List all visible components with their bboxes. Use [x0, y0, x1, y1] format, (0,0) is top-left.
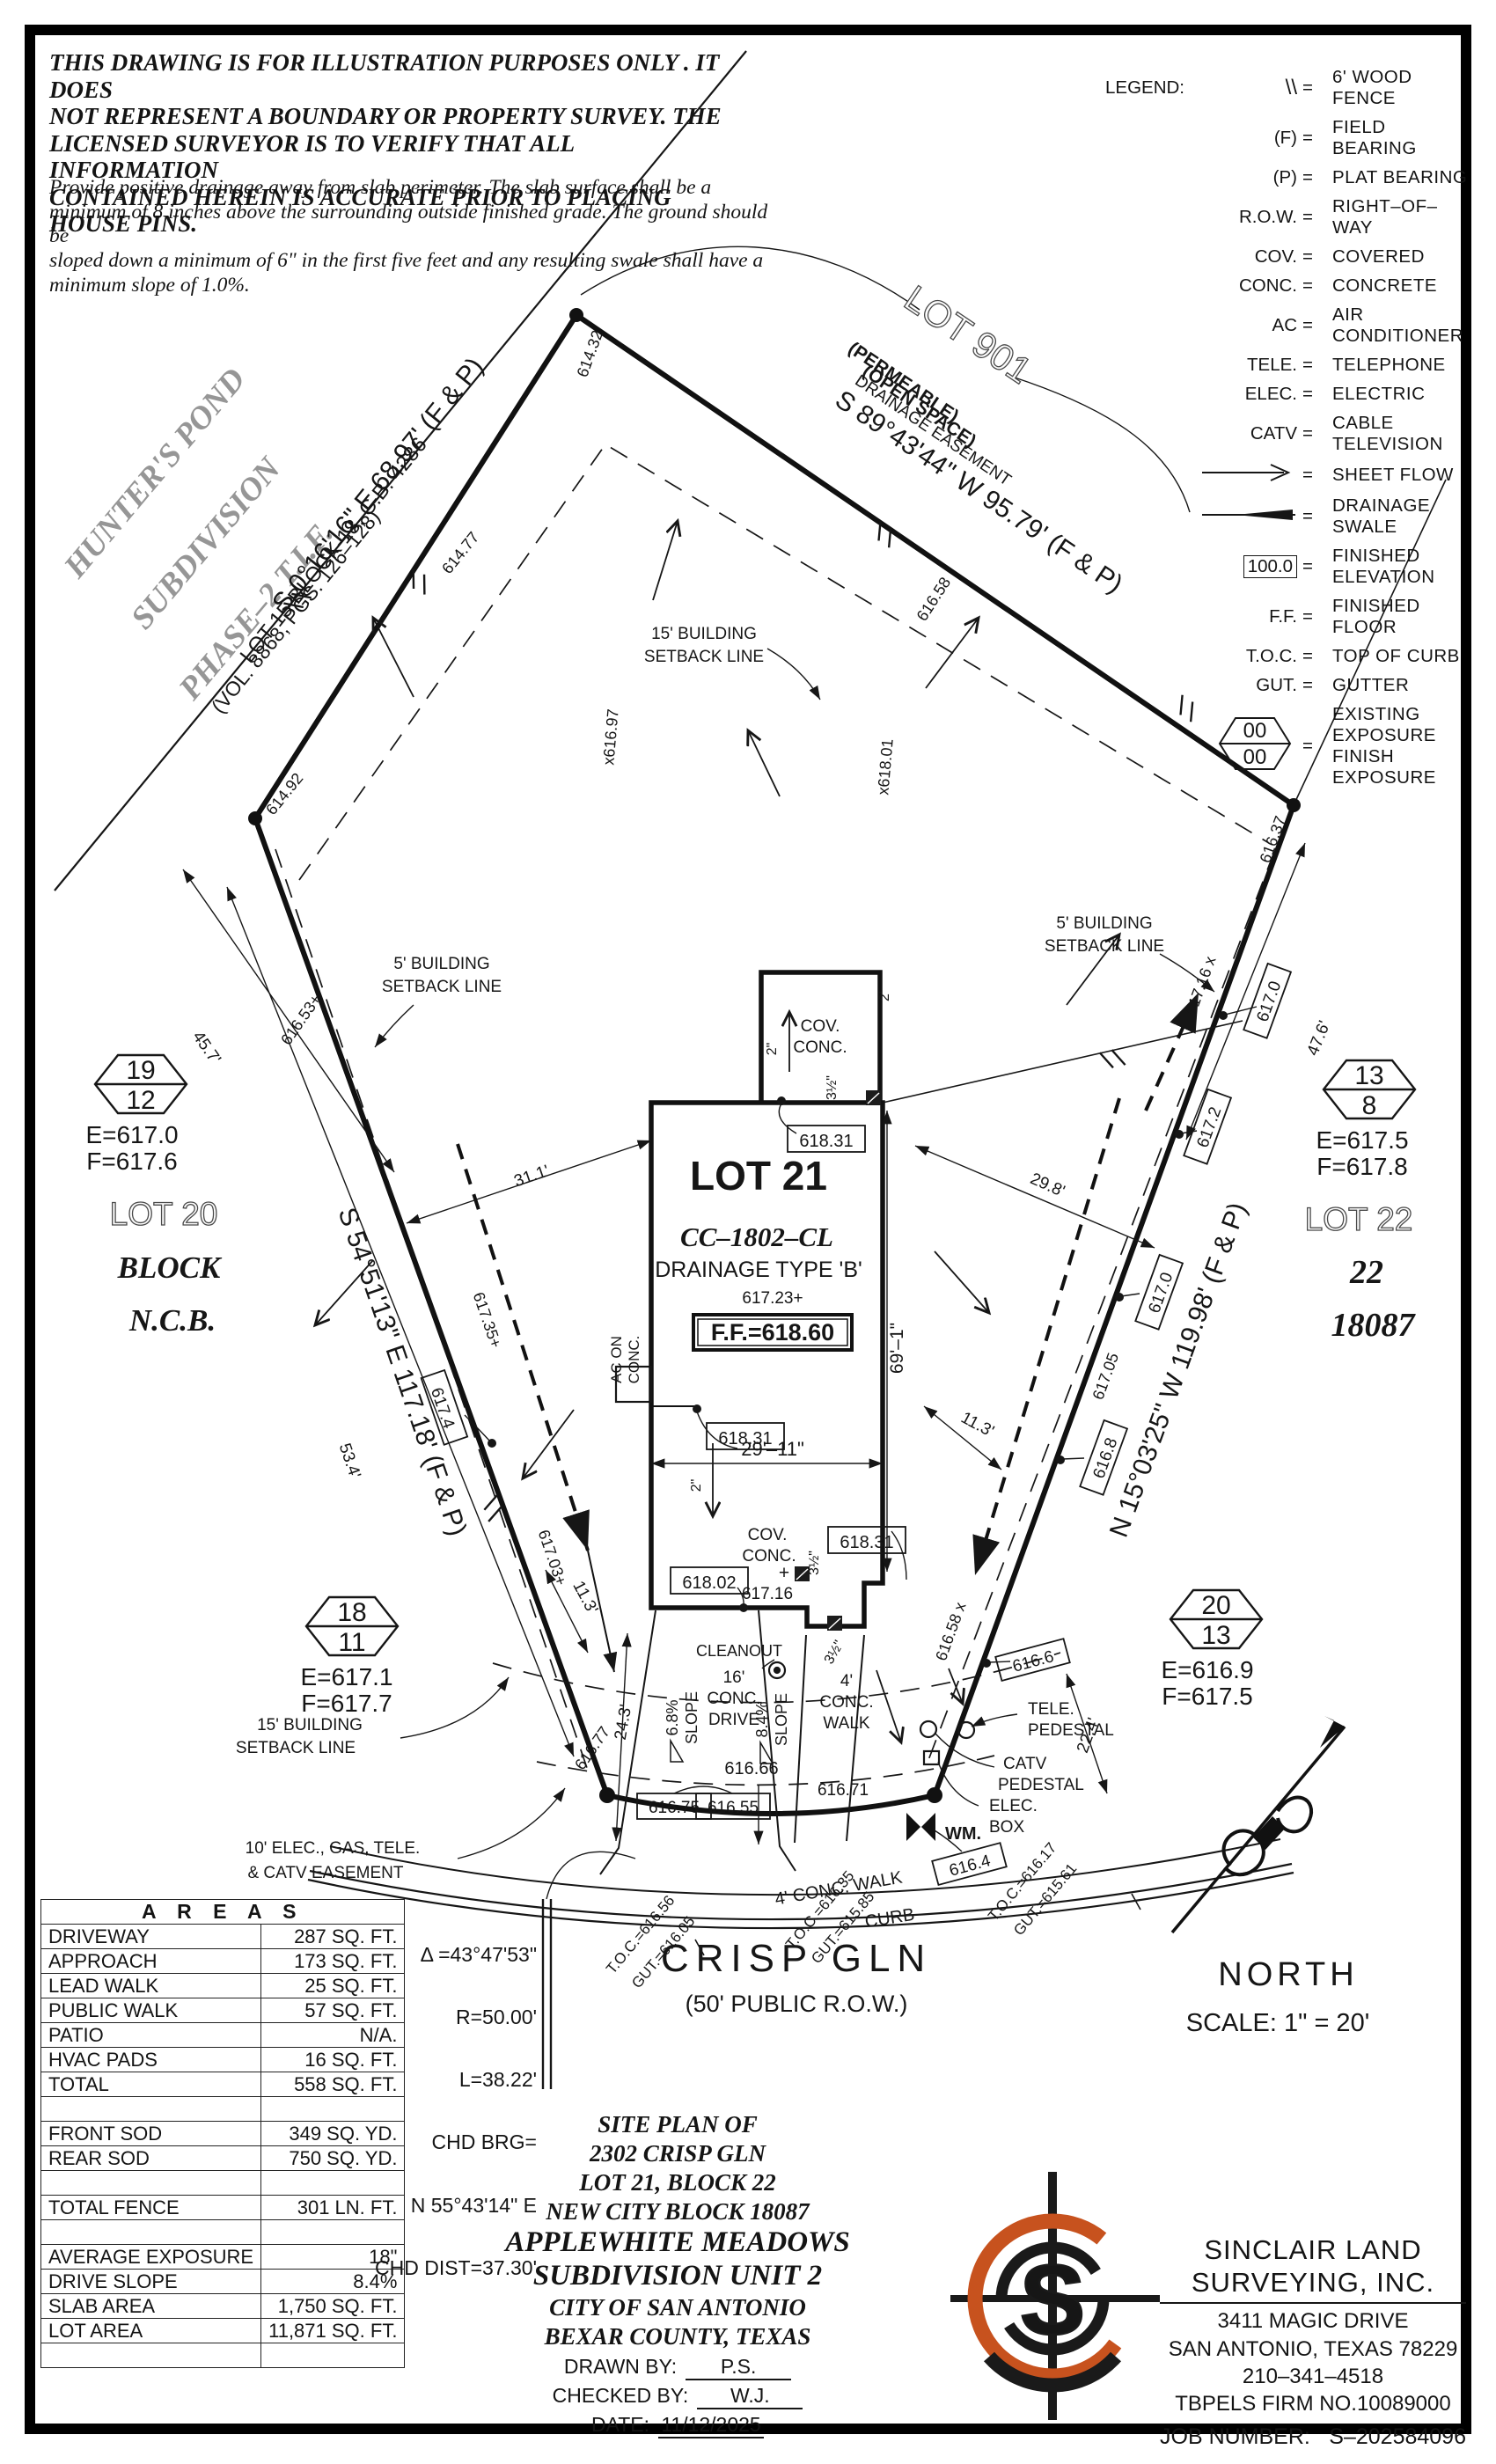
setback-5-label: 5' BUILDING — [393, 955, 489, 973]
finish-exposure-value: F=617.8 — [1316, 1153, 1408, 1180]
util-leader — [972, 1714, 1017, 1727]
finish-exposure-label: FINISH EXPOSURE — [1332, 746, 1471, 788]
subdivision-name: APPLEWHITE MEADOWS — [466, 2226, 889, 2260]
exposure-top: 00 — [1243, 719, 1267, 743]
ncb18087-label: 18087 — [1331, 1307, 1417, 1344]
table-row — [41, 2343, 405, 2368]
firm-phone: 210–341–4518 — [1160, 2363, 1466, 2390]
block22-label: 22 — [1349, 1254, 1383, 1291]
job-number-value: S–202584096 — [1329, 2423, 1466, 2452]
walk-label: 4' — [840, 1672, 853, 1690]
finished-floor-symbol: F.F. — [1190, 606, 1302, 627]
field-bearing-symbol: (F) — [1190, 128, 1302, 149]
north-label: NORTH — [1218, 1956, 1358, 1993]
walk-label: WALK — [823, 1714, 869, 1733]
leader — [988, 1661, 1010, 1662]
firm-block: SINCLAIR LAND SURVEYING, INC. 3411 MAGIC… — [1160, 2233, 1466, 2452]
equals: = — [1302, 556, 1332, 577]
existing-exposure-value: E=617.5 — [1316, 1126, 1408, 1154]
legend-label: GUTTER — [1332, 675, 1471, 696]
curve-length: L=38.22' — [341, 2064, 537, 2096]
sheet-flow-icon — [1190, 463, 1302, 488]
sheet-flow-arrows — [315, 521, 1119, 1742]
spot-elevation-label: x616.97 — [599, 708, 622, 766]
drive-label: 16' — [723, 1668, 745, 1687]
leader — [1062, 1458, 1084, 1459]
equals: = — [1302, 128, 1332, 149]
equals: = — [1302, 77, 1332, 99]
legend-label: SHEET FLOW — [1332, 465, 1471, 486]
slope-label: 6.8% — [664, 1699, 681, 1735]
dim-label: 47.6' — [1304, 1018, 1335, 1059]
catv-symbol: CATV — [1190, 423, 1302, 444]
area-label: TOTAL FENCE — [41, 2196, 261, 2220]
setback-leader — [400, 1677, 509, 1738]
area-label — [41, 2097, 261, 2122]
scale-label: SCALE: 1" = 20' — [1186, 2009, 1369, 2037]
dim-label: 11.3' — [957, 1409, 996, 1441]
job-number-label: JOB NUMBER: — [1160, 2423, 1310, 2452]
legend-label: DRAINAGE SWALE — [1332, 495, 1471, 538]
legend-label: PLAT BEARING — [1332, 167, 1471, 188]
area-label: HVAC PADS — [41, 2048, 261, 2072]
legend-label: ELECTRIC — [1332, 384, 1471, 405]
spot-elevation-label: 614.32 — [574, 328, 607, 380]
area-label — [41, 2220, 261, 2245]
dim-label: 53.4' — [335, 1441, 364, 1481]
finished-elevation-value: 618.02 — [682, 1573, 736, 1593]
drive-label: DRIVE — [708, 1711, 759, 1729]
legend-label: AIR CONDITIONER — [1332, 304, 1471, 347]
setback-leader — [375, 1005, 414, 1047]
spot-elevation-label: 616.71 — [818, 1781, 869, 1800]
legend-title: LEGEND: — [1105, 77, 1190, 99]
setback-5-label: SETBACK LINE — [382, 978, 502, 996]
hex-top-number: 20 — [1201, 1591, 1230, 1620]
legend-label: CONCRETE — [1332, 275, 1471, 297]
easement-label: 10' ELEC., GAS, TELE. — [246, 1839, 421, 1858]
county-line: BEXAR COUNTY, TEXAS — [466, 2322, 889, 2351]
leader — [1121, 1294, 1140, 1296]
ac-label: CONC. — [626, 1336, 642, 1384]
subdivision-unit: SUBDIVISION UNIT 2 — [466, 2260, 889, 2293]
street-row-label: (50' PUBLIC R.O.W.) — [686, 1991, 908, 2017]
drawn-by-value: P.S. — [686, 2355, 791, 2380]
slope-label: SLOPE — [683, 1691, 700, 1744]
setback-15-label: 15' BUILDING — [651, 625, 757, 643]
water-meter-symbol — [906, 1813, 935, 1841]
flow-arrow — [876, 1670, 901, 1742]
lot901-label: LOT 901 — [898, 277, 1039, 392]
cleanout-symbol — [774, 1668, 780, 1673]
area-label — [41, 2343, 261, 2368]
lot-block-line: LOT 21, BLOCK 22 — [466, 2168, 889, 2197]
checked-by-value: W.J. — [697, 2384, 803, 2409]
easement-label: & CATV EASEMENT — [247, 1864, 403, 1882]
firm-name: SURVEYING, INC. — [1160, 2266, 1466, 2299]
exposure-bottom: 00 — [1243, 745, 1267, 769]
walk-label: CONC. — [819, 1693, 873, 1712]
equals: = — [1302, 275, 1332, 297]
telephone-symbol: TELE. — [1190, 355, 1302, 376]
area-label: FRONT SOD — [41, 2122, 261, 2146]
equals: = — [1302, 506, 1332, 527]
finished-floor-label: F.F.=618.60 — [711, 1319, 834, 1346]
legend-label: RIGHT–OF–WAY — [1332, 196, 1471, 238]
spot-elevation-label: 614.77 — [438, 529, 482, 577]
area-value: 11,871 SQ. FT. — [261, 2319, 405, 2343]
legend-label: EXISTING EXPOSUREFINISH EXPOSURE — [1332, 704, 1471, 788]
hex-bottom-number: 11 — [338, 1628, 365, 1657]
dim-label: 3½" — [825, 1075, 840, 1100]
equals: = — [1302, 646, 1332, 667]
finished-elevation-value: 618.31 — [799, 1132, 853, 1151]
corner-pin — [599, 1787, 615, 1803]
catv-pedestal-label: PEDESTAL — [998, 1776, 1084, 1794]
plat-bearing-symbol: (P) — [1190, 167, 1302, 188]
site-plan-sheet: HUNTER'S POND SUBDIVISION PHASE–2 T.I.F.… — [0, 0, 1496, 2464]
adjacent-subdivision-name: HUNTER'S POND — [56, 362, 253, 586]
curve-leader — [546, 1852, 635, 1899]
equals: = — [1302, 167, 1332, 188]
title-line: SITE PLAN OF — [466, 2110, 889, 2139]
flow-arrow — [935, 1251, 989, 1313]
north-arrow — [1172, 1716, 1345, 1932]
north-arrow-shaft — [1172, 1727, 1345, 1932]
covered-symbol: COV. — [1190, 246, 1302, 268]
setback-leader — [767, 649, 820, 700]
dim-label: 11.3' — [568, 1578, 601, 1617]
legend-label: FIELD BEARING — [1332, 117, 1471, 159]
firm-city: SAN ANTONIO, TEXAS 78229 — [1160, 2336, 1466, 2363]
date-label: DATE: — [591, 2413, 649, 2438]
ac-label: AC ON — [608, 1336, 625, 1383]
legend-label: CABLE TELEVISION — [1332, 413, 1471, 455]
swale-arrow — [458, 1144, 588, 1551]
ncb-label: N.C.B. — [128, 1303, 216, 1338]
equals: = — [1302, 315, 1332, 336]
equals: = — [1302, 246, 1332, 268]
curve-data-bars — [543, 1899, 551, 2089]
city-line: CITY OF SAN ANTONIO — [466, 2293, 889, 2322]
dim-label: 24.3' — [612, 1703, 636, 1742]
logo-letter: S — [1020, 2245, 1086, 2355]
hex-symbol-13-8: 13 8 E=617.5 F=617.8 — [1316, 1060, 1415, 1180]
date-value: 11/12/2025 — [658, 2413, 764, 2438]
hex-top-number: 18 — [337, 1598, 366, 1627]
dim-label: 3½" — [822, 1638, 847, 1667]
finished-elevation-value: 616.75 — [649, 1799, 700, 1817]
finished-elevation-symbol: 100.0 — [1243, 555, 1297, 578]
area-label — [41, 2171, 261, 2196]
concrete-symbol: CONC. — [1190, 275, 1302, 297]
flow-arrow — [926, 618, 979, 688]
fence-marks — [283, 521, 1200, 1522]
bearing-label: N 15°03'25" W 119.98' (F & P) — [1104, 1199, 1253, 1541]
bearing-label: S 0°16'16" E 68.97' (F & P) — [267, 352, 489, 617]
north-arrow-flourish — [1278, 1798, 1311, 1832]
spot-elevation-label: 617.35+ — [470, 1290, 505, 1351]
corner-pin — [248, 811, 262, 825]
area-label: PATIO — [41, 2023, 261, 2048]
finished-elevation-value: 616.55 — [708, 1799, 759, 1817]
drainage-swale-icon — [1190, 506, 1302, 527]
flow-arrow — [653, 521, 678, 600]
cleanout-label: CLEANOUT — [696, 1642, 782, 1660]
equals: = — [1302, 465, 1332, 486]
title-block: SITE PLAN OF 2302 CRISP GLN LOT 21, BLOC… — [466, 2110, 889, 2438]
equals: = — [1302, 355, 1332, 376]
top-of-curb-symbol: T.O.C. — [1190, 646, 1302, 667]
dim-label: 3½" — [807, 1551, 822, 1575]
hex-symbol-20-13: 20 13 E=616.9 F=617.5 — [1161, 1590, 1262, 1710]
legend-label: TOP OF CURB — [1332, 646, 1471, 667]
drive-edge — [600, 1610, 656, 1874]
drainage-type-label: DRAINAGE TYPE 'B' — [655, 1258, 862, 1282]
dim-label: 2" — [689, 1479, 704, 1492]
spot-elevation-label: 616.77 — [571, 1723, 613, 1773]
curve-delta: Δ =43°47'53" — [341, 1940, 537, 1971]
bearing-label: S 89°43'44" W 95.79' (F & P) — [830, 385, 1127, 599]
hex-bottom-number: 12 — [126, 1086, 155, 1115]
legend: LEGEND: \\ =6' WOOD FENCE (F) =FIELD BEA… — [1105, 67, 1471, 788]
area-label: DRIVE SLOPE — [41, 2270, 261, 2294]
tele-pedestal-label: TELE. — [1028, 1700, 1074, 1719]
equals: = — [1302, 384, 1332, 405]
area-label: REAR SOD — [41, 2146, 261, 2171]
checked-by-label: CHECKED BY: — [553, 2384, 689, 2409]
legend-label: FINISHED FLOOR — [1332, 596, 1471, 638]
area-label: PUBLIC WALK — [41, 1998, 261, 2023]
equals: = — [1302, 606, 1332, 627]
spot-elevation-label: 617.16 x — [1182, 954, 1219, 1017]
pad-elevation-label: 617.23+ — [742, 1289, 803, 1308]
area-label: SLAB AREA — [41, 2294, 261, 2319]
existing-exposure-value: E=617.1 — [300, 1663, 392, 1690]
existing-exposure-label: EXISTING EXPOSURE — [1332, 704, 1471, 746]
legend-label: 6' WOOD FENCE — [1332, 67, 1471, 109]
hex-top-number: 13 — [1354, 1061, 1383, 1090]
area-label: LOT AREA — [41, 2319, 261, 2343]
equals: = — [1302, 207, 1332, 228]
equals: = — [1302, 675, 1332, 696]
spot-elevation-label: 616.37 — [1257, 814, 1290, 866]
firm-street: 3411 MAGIC DRIVE — [1160, 2307, 1466, 2335]
elec-box-label: BOX — [989, 1818, 1024, 1837]
street-name: CRISP GLN — [661, 1937, 932, 1980]
electric-symbol: ELEC. — [1190, 384, 1302, 405]
corner-pin — [927, 1787, 942, 1803]
spot-elevation-label: 616.58 x — [932, 1600, 969, 1663]
legend-label: COVERED — [1332, 246, 1471, 268]
exposure-hex-icon: 00 00 — [1190, 711, 1302, 781]
hex-symbol-19-12: 19 12 E=617.0 F=617.6 — [85, 1055, 187, 1175]
new-city-block-line: NEW CITY BLOCK 18087 — [466, 2197, 889, 2226]
lot20-label: LOT 20 — [110, 1196, 218, 1232]
covered-patio-outline — [761, 972, 880, 1103]
drainage-note-paragraph: Provide positive drainage away from slab… — [49, 176, 780, 298]
curve-radius: R=50.00' — [341, 2002, 537, 2034]
elec-box-label: ELEC. — [989, 1797, 1038, 1815]
plan-model-label: CC–1802–CL — [680, 1221, 833, 1252]
dim-label: 2' — [877, 991, 892, 1001]
dim-label: 31.1' — [512, 1162, 552, 1191]
dim-label: 69'–1" — [887, 1323, 907, 1374]
drawn-by-label: DRAWN BY: — [564, 2355, 677, 2380]
hex-bottom-number: 8 — [1362, 1091, 1377, 1120]
dim-label: 2" — [765, 1043, 780, 1056]
tele-pedestal-label: PEDESTAL — [1028, 1721, 1114, 1740]
spot-elevation-label: 617.03+ — [535, 1528, 570, 1588]
curb-label: CURB — [863, 1905, 915, 1932]
flow-arrow — [949, 1668, 963, 1704]
hex-symbol-18-11: 18 11 E=617.1 F=617.7 — [300, 1597, 398, 1717]
firm-name: SINCLAIR LAND — [1160, 2233, 1466, 2266]
area-label: TOTAL — [41, 2072, 261, 2097]
legend-label: TELEPHONE — [1332, 355, 1471, 376]
dim-line — [915, 1146, 1155, 1248]
hex-top-number: 19 — [126, 1056, 155, 1085]
finish-exposure-value: F=617.7 — [301, 1690, 392, 1717]
setback-5-label: 5' BUILDING — [1056, 914, 1152, 933]
bearing-label: S 54°51'13" E 117.18' (F & P) — [333, 1204, 473, 1539]
block-label: BLOCK — [117, 1250, 223, 1285]
covered-conc-label: COV. — [801, 1017, 840, 1036]
setback-15-label: 15' BUILDING — [257, 1716, 363, 1734]
catv-pedestal-label: CATV — [1003, 1755, 1047, 1773]
covered-conc-elevation: 617.16 — [742, 1585, 793, 1603]
equals: = — [1302, 423, 1332, 444]
area-label: LEAD WALK — [41, 1974, 261, 1998]
water-meter-label: WM. — [945, 1824, 981, 1844]
corner-pin — [569, 308, 583, 322]
ac-symbol: AC — [1190, 315, 1302, 336]
spot-elevation-label: 616.66 — [724, 1759, 778, 1778]
dim-label: 45.7' — [188, 1028, 224, 1067]
covered-conc-label: + — [779, 1563, 789, 1583]
setback-15-label: SETBACK LINE — [236, 1739, 356, 1757]
easement-leader — [458, 1788, 565, 1859]
area-label: DRIVEWAY — [41, 1925, 261, 1949]
area-label: AVERAGE EXPOSURE — [41, 2245, 261, 2270]
setback-5-label: SETBACK LINE — [1045, 937, 1164, 956]
lot21-label: LOT 21 — [690, 1153, 827, 1199]
elev-bracket — [674, 1786, 732, 1793]
fence-symbol: \\ — [1190, 76, 1302, 100]
slope-label: 8.4% — [753, 1701, 771, 1737]
existing-exposure-value: E=616.9 — [1161, 1656, 1253, 1683]
existing-exposure-value: E=617.0 — [85, 1121, 178, 1148]
firm-logo: S — [950, 2172, 1160, 2420]
firm-address: 3411 MAGIC DRIVE SAN ANTONIO, TEXAS 7822… — [1160, 2302, 1466, 2417]
spot-elevation-label: x618.01 — [874, 738, 897, 796]
area-value — [261, 2343, 405, 2368]
covered-conc-label: CONC. — [793, 1038, 847, 1057]
swale-arrow — [975, 1098, 1119, 1575]
spot-elevation-label: 616.58 — [913, 574, 955, 624]
tele-pedestal-symbol — [920, 1721, 936, 1737]
covered-conc-label: COV. — [748, 1526, 788, 1544]
setback-15-label: SETBACK LINE — [644, 648, 764, 666]
finish-exposure-value: F=617.6 — [86, 1148, 178, 1175]
flow-arrow — [748, 730, 780, 796]
legend-label: FINISHED ELEVATION — [1332, 546, 1471, 588]
gutter-symbol: GUT. — [1190, 675, 1302, 696]
flow-arrow — [523, 1410, 574, 1478]
finished-elevation-value: 618.31 — [840, 1533, 893, 1552]
firm-tbpels: TBPELS FIRM NO.10089000 — [1160, 2390, 1466, 2417]
table-row: LOT AREA11,871 SQ. FT. — [41, 2319, 405, 2343]
hex-bottom-number: 13 — [1201, 1621, 1230, 1650]
finish-exposure-value: F=617.5 — [1162, 1683, 1253, 1710]
slope-label: SLOPE — [773, 1693, 790, 1746]
corner-pin — [1287, 798, 1301, 812]
dim-label: 29'–11" — [741, 1438, 804, 1460]
row-symbol: R.O.W. — [1190, 207, 1302, 228]
area-label: APPROACH — [41, 1949, 261, 1974]
flow-arrow — [373, 618, 414, 697]
site-address: 2302 CRISP GLN — [466, 2139, 889, 2168]
lot22-label: LOT 22 — [1305, 1201, 1413, 1237]
equals: = — [1302, 736, 1332, 757]
